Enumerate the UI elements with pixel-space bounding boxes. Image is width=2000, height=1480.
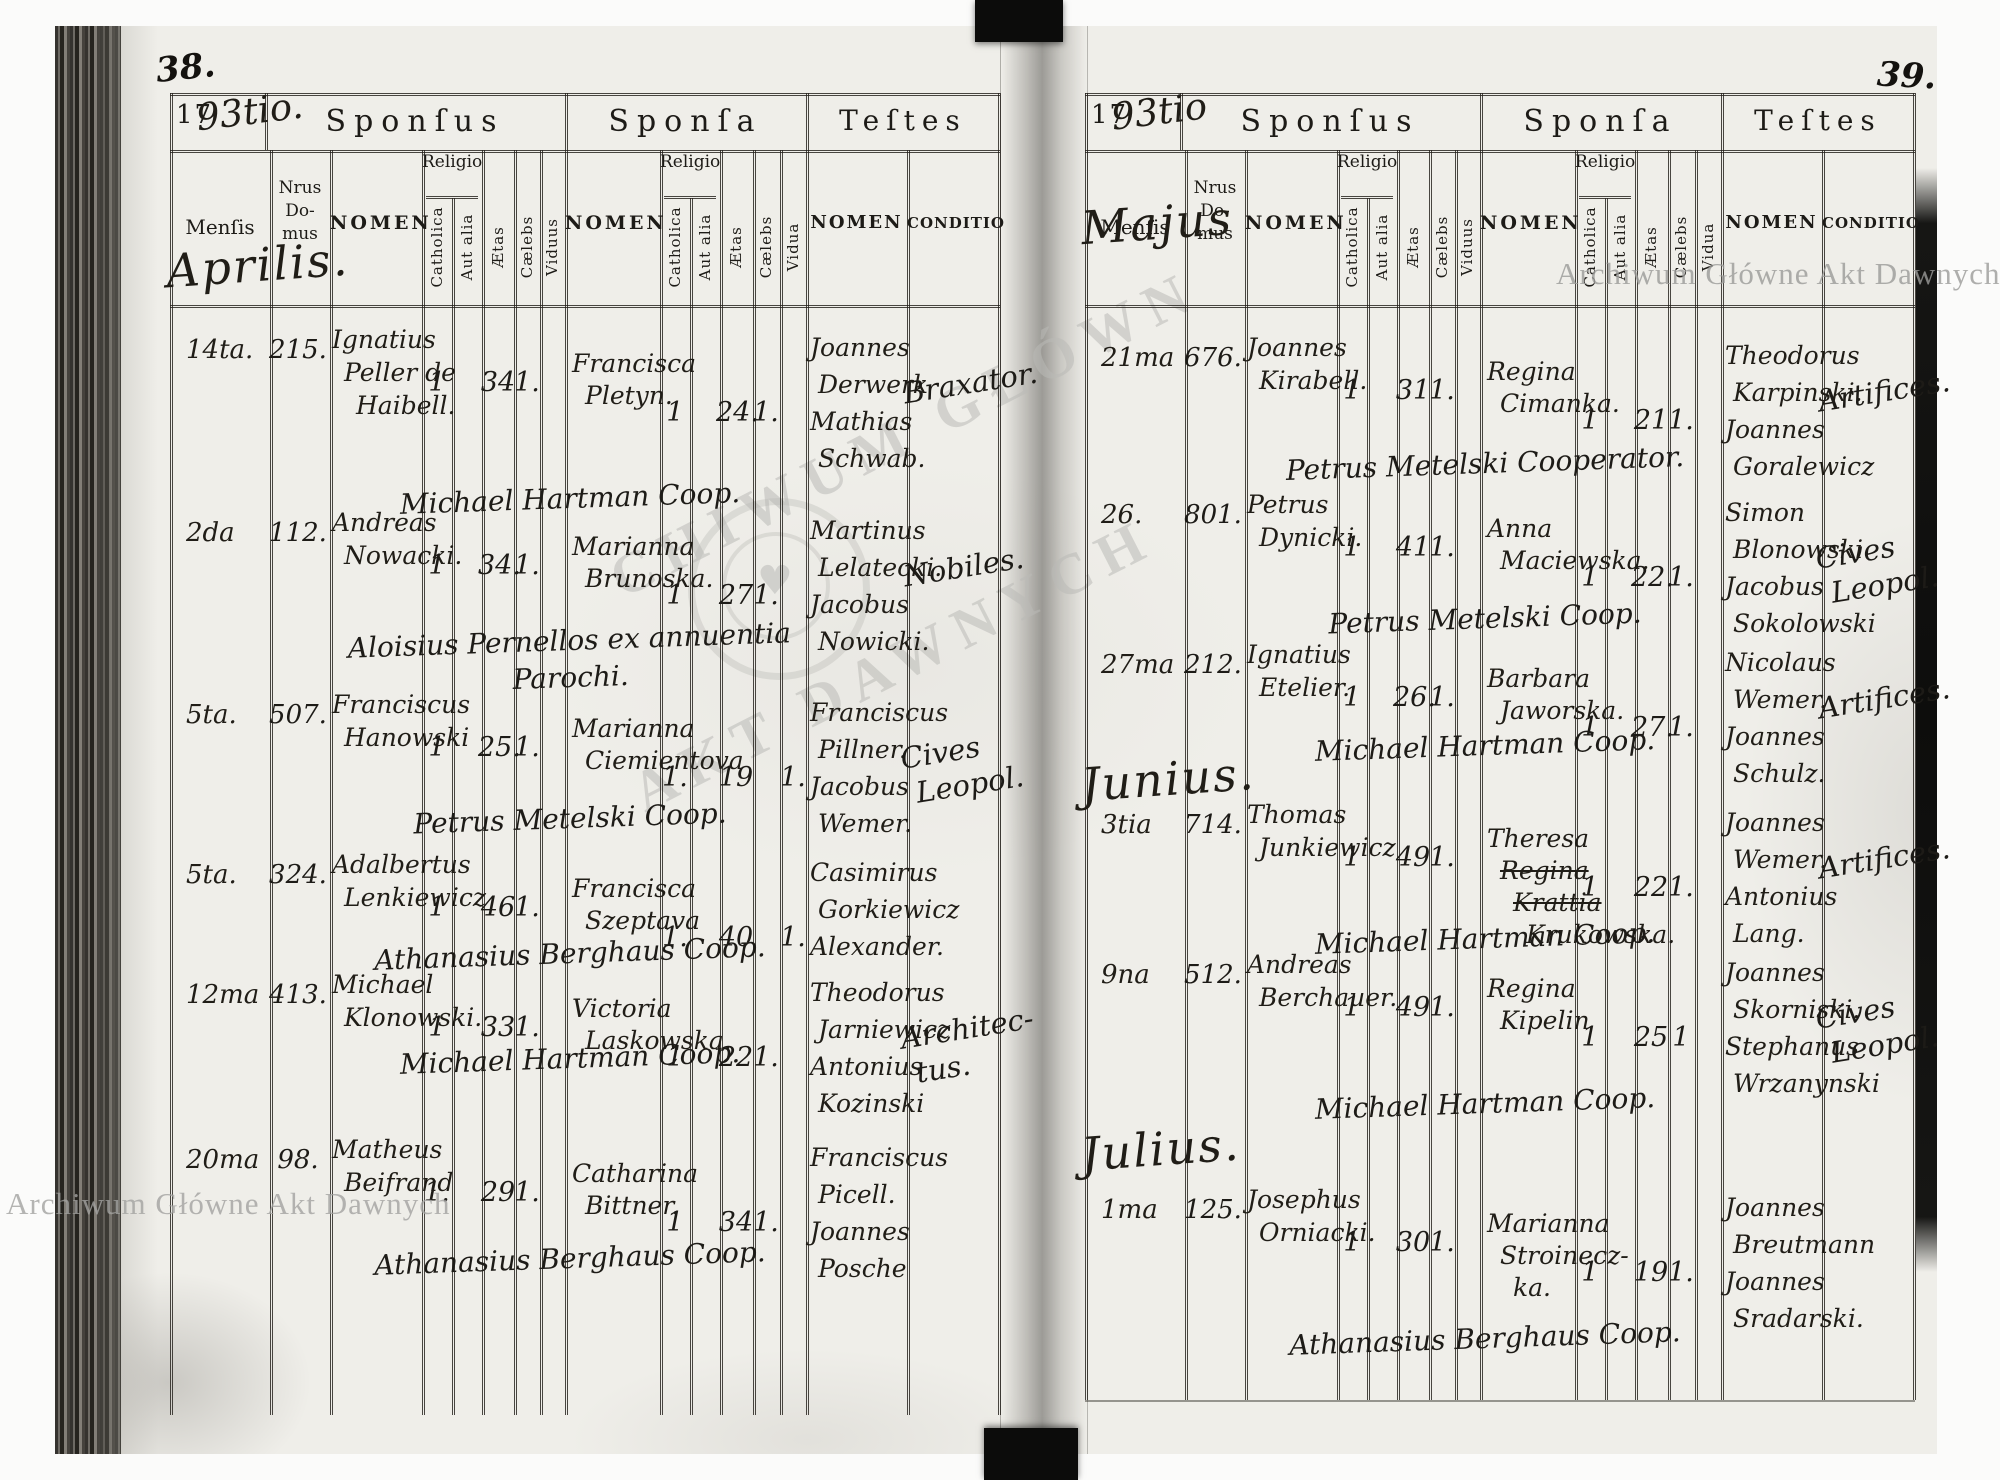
column-label-conditio: CONDITIO bbox=[907, 214, 1000, 232]
column-label-religio-sponsus: Religio bbox=[1337, 152, 1397, 172]
entry-house-number: 512. bbox=[1183, 960, 1243, 990]
sponsus-catholica: 1 bbox=[1332, 375, 1372, 406]
table-rule-vertical bbox=[1668, 150, 1671, 1400]
section-title-testes: Teſtes bbox=[806, 104, 1000, 137]
sponsa-name-line: Francisca bbox=[572, 874, 696, 903]
sponsus-catholica: 1. bbox=[417, 1177, 457, 1208]
column-label-aetas-sponsa: Ætas bbox=[727, 197, 745, 297]
entry-date: 26. bbox=[1101, 500, 1142, 530]
book-right-edge-shadow bbox=[1916, 168, 1937, 1272]
table-rule-horizontal bbox=[170, 150, 1000, 153]
witness-name-line: Joannes bbox=[1725, 958, 1825, 987]
sponsa-vidua: 1. bbox=[773, 762, 813, 793]
sponsa-catholica: 1 bbox=[655, 580, 695, 611]
column-label-caelebs-sponsa: Cælebs bbox=[757, 197, 775, 297]
month-heading: Junius. bbox=[1079, 746, 1257, 812]
section-title-sponsa: Sponſa bbox=[1480, 104, 1721, 139]
table-rule-vertical bbox=[482, 150, 485, 1415]
sponsa-name-line: Regina bbox=[1487, 357, 1576, 386]
sponsus-name-line: Ignatius bbox=[332, 325, 436, 354]
column-label-caelebs-sponsus: Cælebs bbox=[518, 197, 536, 297]
entry-house-number: 801. bbox=[1183, 500, 1243, 530]
column-label-catholica-sponsa: Catholica bbox=[1581, 197, 1599, 297]
sponsus-catholica: 1 bbox=[417, 892, 457, 923]
entry-date: 27ma bbox=[1101, 650, 1174, 680]
column-label-aut-alia-sponsus: Aut alia bbox=[1373, 197, 1391, 297]
sponsus-caelebs: 1. bbox=[507, 1012, 547, 1043]
entry-date: 5ta. bbox=[186, 860, 237, 890]
section-title-sponsa: Sponſa bbox=[565, 104, 806, 139]
sponsa-catholica: 1 bbox=[1570, 1022, 1610, 1053]
sponsa-catholica: 1 bbox=[1570, 1257, 1610, 1288]
column-label-conditio: CONDITIO bbox=[1822, 214, 1915, 232]
witness-name-line: Wrzanynski bbox=[1733, 1069, 1880, 1098]
section-title-testes: Teſtes bbox=[1721, 104, 1915, 137]
sponsa-catholica: 1 bbox=[1570, 405, 1610, 436]
sponsus-name-line: Josephus bbox=[1247, 1185, 1361, 1214]
sponsa-name-line: Marianna bbox=[572, 532, 694, 561]
entry-date: 9na bbox=[1101, 960, 1150, 990]
witness-name-line: Pillner. bbox=[818, 735, 907, 764]
witness-name-line: Mathias bbox=[810, 407, 912, 436]
sponsa-catholica: 1 bbox=[655, 397, 695, 428]
sponsus-name-line: Andreas bbox=[332, 508, 437, 537]
entry-date: 21ma bbox=[1101, 343, 1174, 373]
sponsus-caelebs: 1. bbox=[1422, 842, 1462, 873]
sponsus-name-line: Thomas bbox=[1247, 800, 1346, 829]
sponsus-name-line: Matheus bbox=[332, 1135, 442, 1164]
column-label-aut-alia-sponsus: Aut alia bbox=[458, 197, 476, 297]
table-rule-horizontal bbox=[170, 93, 1000, 96]
entry-date: 2da bbox=[186, 518, 235, 548]
witness-name-line: Wemer. bbox=[1733, 685, 1827, 714]
sponsus-caelebs: 1. bbox=[1422, 375, 1462, 406]
witness-name-line: Sokolowski bbox=[1733, 609, 1876, 638]
column-label-nomen-sponsus: NOMEN bbox=[330, 212, 422, 234]
sponsa-name-line: Marianna bbox=[572, 714, 694, 743]
sponsa-caelebs: 1. bbox=[746, 397, 786, 428]
sponsus-catholica: 1 bbox=[1332, 682, 1372, 713]
sponsus-catholica: 1 bbox=[1332, 532, 1372, 563]
sponsa-name-line: ka. bbox=[1513, 1273, 1551, 1302]
sponsa-name-line: Barbara bbox=[1487, 664, 1590, 693]
sponsa-caelebs: 1. bbox=[1661, 405, 1701, 436]
column-label-religio-sponsa: Religio bbox=[1575, 152, 1635, 172]
section-title-sponsus: Sponſus bbox=[1180, 104, 1480, 139]
column-label-aut-alia-sponsa: Aut alia bbox=[696, 197, 714, 297]
witness-name-line: Wemer. bbox=[818, 809, 912, 838]
witness-name-line: Posche bbox=[818, 1254, 907, 1283]
sponsus-name-line: Berchauer. bbox=[1259, 983, 1397, 1012]
page-right: 39. 17 93tio SponſusSponſaTeſtesMenſisNr… bbox=[1085, 0, 1915, 1480]
entry-date: 14ta. bbox=[186, 335, 253, 365]
table-rule-vertical bbox=[1480, 150, 1483, 1400]
sponsa-name-line: Regina bbox=[1487, 974, 1576, 1003]
sponsus-caelebs: 1. bbox=[507, 367, 547, 398]
sponsa-catholica: 1 bbox=[1570, 562, 1610, 593]
column-label-aut-alia-sponsa: Aut alia bbox=[1611, 197, 1629, 297]
sponsus-caelebs: 1. bbox=[507, 1177, 547, 1208]
table-rule-vertical bbox=[1455, 150, 1458, 1400]
sponsa-name-line: Francisca bbox=[572, 349, 696, 378]
table-rule-vertical bbox=[1695, 150, 1698, 1400]
entry-date: 12ma bbox=[186, 980, 259, 1010]
sponsus-name-line: Klonowski. bbox=[344, 1003, 482, 1032]
table-rule-horizontal bbox=[1085, 305, 1915, 308]
sponsus-name-line: Adalbertus bbox=[332, 850, 471, 879]
column-label-mensis: Menſis bbox=[170, 215, 270, 239]
month-heading: Aprilis. bbox=[164, 232, 350, 299]
table-rule-vertical bbox=[1085, 93, 1088, 1400]
sponsus-caelebs: 1. bbox=[507, 892, 547, 923]
column-label-religio-sponsus: Religio bbox=[422, 152, 482, 172]
entry-date: 1ma bbox=[1101, 1195, 1158, 1225]
witness-name-line: Joannes bbox=[1725, 808, 1825, 837]
sponsus-name-line: Ignatius bbox=[1247, 640, 1351, 669]
witness-name-line: Simon bbox=[1725, 498, 1805, 527]
book-gutter bbox=[1000, 26, 1088, 1454]
witness-name-line: Schulz. bbox=[1733, 759, 1825, 788]
table-rule-vertical bbox=[1635, 150, 1638, 1400]
column-label-nomen-testes: NOMEN bbox=[1721, 212, 1822, 233]
table-rule-horizontal bbox=[1085, 1400, 1915, 1402]
column-label-vidua: Vidua bbox=[1699, 197, 1717, 297]
entry-date: 20ma bbox=[186, 1145, 259, 1175]
column-label-caelebs-sponsus: Cælebs bbox=[1433, 197, 1451, 297]
witness-name-line: Joannes bbox=[810, 333, 910, 362]
column-label-nomen-testes: NOMEN bbox=[806, 212, 907, 233]
table-rule-vertical bbox=[1721, 150, 1724, 1400]
page-number: 38. bbox=[154, 45, 217, 91]
witness-name-line: Kozinski bbox=[818, 1089, 924, 1118]
witness-name-line: Theodorus bbox=[810, 978, 945, 1007]
column-label-catholica-sponsus: Catholica bbox=[1343, 197, 1361, 297]
table-rule-vertical bbox=[1429, 150, 1432, 1400]
column-label-nomen-sponsa: NOMEN bbox=[565, 212, 660, 234]
table-rule-vertical bbox=[1913, 93, 1916, 1400]
entry-house-number: 413. bbox=[268, 980, 328, 1010]
sponsus-catholica: 1 bbox=[1332, 992, 1372, 1023]
sponsus-name-line: Petrus bbox=[1247, 490, 1328, 519]
entry-date: 3tia bbox=[1101, 810, 1152, 840]
table-rule-horizontal bbox=[1085, 150, 1915, 153]
section-title-sponsus: Sponſus bbox=[265, 104, 565, 139]
month-heading: Majus bbox=[1079, 191, 1234, 255]
sponsa-name-line: Catharina bbox=[572, 1159, 698, 1188]
book-left-edge-shade bbox=[98, 26, 158, 1454]
sponsa-caelebs: 1. bbox=[1661, 1257, 1701, 1288]
month-heading: Julius. bbox=[1079, 1117, 1242, 1182]
sponsa-caelebs: 1. bbox=[1661, 562, 1701, 593]
sponsa-name-line: Victoria bbox=[572, 994, 672, 1023]
entry-house-number: 676. bbox=[1183, 343, 1243, 373]
sponsus-name-line: Andreas bbox=[1247, 950, 1352, 979]
sponsa-catholica: 1. bbox=[655, 762, 695, 793]
sponsus-catholica: 1 bbox=[417, 732, 457, 763]
entry-house-number: 507. bbox=[268, 700, 328, 730]
sponsa-caelebs: 1 bbox=[1661, 1022, 1701, 1053]
sponsus-name-line: Joannes bbox=[1247, 333, 1347, 362]
sponsus-caelebs: 1. bbox=[507, 732, 547, 763]
witness-name-line: Nicolaus bbox=[1725, 648, 1836, 677]
sponsus-catholica: 1 bbox=[1332, 1227, 1372, 1258]
sponsus-name-line: Lenkiewicz bbox=[344, 883, 486, 912]
column-label-caelebs-sponsa: Cælebs bbox=[1672, 197, 1690, 297]
sponsa-catholica: 1 bbox=[1570, 872, 1610, 903]
sponsa-caelebs: 1. bbox=[746, 580, 786, 611]
witness-name-line: Antonius bbox=[1725, 882, 1837, 911]
witness-name-line: Martinus bbox=[810, 516, 926, 545]
table-rule-vertical bbox=[1397, 150, 1400, 1400]
witness-name-line: Breutmann bbox=[1733, 1230, 1875, 1259]
sponsa-caelebs: 1. bbox=[1661, 872, 1701, 903]
witness-name-line: Franciscus bbox=[810, 1143, 948, 1172]
sponsus-caelebs: 1. bbox=[507, 550, 547, 581]
sponsus-caelebs: 1. bbox=[1422, 532, 1462, 563]
column-label-viduus: Viduus bbox=[1458, 197, 1476, 297]
witness-name-line: Franciscus bbox=[810, 698, 948, 727]
sponsa-name-line: Anna bbox=[1487, 514, 1552, 543]
witness-name-line: Casimirus bbox=[810, 858, 937, 887]
sponsus-caelebs: 1. bbox=[1422, 1227, 1462, 1258]
sponsus-catholica: 1 bbox=[417, 1012, 457, 1043]
entry-house-number: 212. bbox=[1183, 650, 1243, 680]
witness-name-line: Goralewicz bbox=[1733, 452, 1874, 481]
entry-house-number: 125. bbox=[1183, 1195, 1243, 1225]
witness-name-line: Schwab. bbox=[818, 444, 925, 473]
column-label-viduus: Viduus bbox=[543, 197, 561, 297]
page-number: 39. bbox=[1876, 54, 1937, 97]
sponsus-caelebs: 1. bbox=[1422, 992, 1462, 1023]
table-rule-vertical bbox=[540, 150, 543, 1415]
witness-name-line: Picell. bbox=[818, 1180, 896, 1209]
witness-name-line: Joannes bbox=[1725, 1193, 1825, 1222]
column-label-nrus-domus: Nrus bbox=[270, 178, 330, 198]
table-rule-vertical bbox=[565, 150, 568, 1415]
column-label-aetas-sponsus: Ætas bbox=[1404, 197, 1422, 297]
entry-house-number: 112. bbox=[268, 518, 328, 548]
column-label-nomen-sponsus: NOMEN bbox=[1245, 212, 1337, 234]
column-label-nrus-domus: Do- bbox=[270, 201, 330, 221]
column-label-religio-sponsa: Religio bbox=[660, 152, 720, 172]
sponsus-caelebs: 1. bbox=[1422, 682, 1462, 713]
witness-name-line: Sradarski. bbox=[1733, 1304, 1864, 1333]
column-label-nomen-sponsa: NOMEN bbox=[1480, 212, 1575, 234]
sponsa-aetas: 19 bbox=[716, 762, 756, 793]
sponsus-name-line: Michael bbox=[332, 970, 433, 999]
sponsus-name-line: Junkiewicz bbox=[1259, 833, 1396, 862]
column-label-vidua: Vidua bbox=[784, 197, 802, 297]
register-scan: CHIWUM GŁÓWN AKT DAWNYCH ♥ 38. 17 93tio.… bbox=[0, 0, 2000, 1480]
table-rule-vertical bbox=[514, 150, 517, 1415]
sponsa-name-line: Marianna bbox=[1487, 1209, 1609, 1238]
sponsa-catholica: 1 bbox=[655, 1207, 695, 1238]
sponsus-catholica: 1 bbox=[417, 367, 457, 398]
witness-name-line: Joannes bbox=[1725, 1267, 1825, 1296]
entry-house-number: 215. bbox=[268, 335, 328, 365]
column-label-aetas-sponsus: Ætas bbox=[489, 197, 507, 297]
witness-name-line: Wemer. bbox=[1733, 845, 1827, 874]
table-rule-horizontal bbox=[170, 305, 1000, 308]
column-label-aetas-sponsa: Ætas bbox=[1642, 197, 1660, 297]
page-left: 38. 17 93tio. SponſusSponſaTeſtesMenſisN… bbox=[170, 0, 1000, 1480]
witness-name-line: Gorkiewicz bbox=[818, 895, 959, 924]
entry-house-number: 714. bbox=[1183, 810, 1243, 840]
sponsus-name-line: Franciscus bbox=[332, 690, 470, 719]
witness-name-line: Theodorus bbox=[1725, 341, 1860, 370]
column-label-catholica-sponsus: Catholica bbox=[428, 197, 446, 297]
entry-house-number: 98. bbox=[268, 1145, 328, 1175]
table-rule-horizontal bbox=[1085, 93, 1915, 96]
column-label-catholica-sponsa: Catholica bbox=[666, 197, 684, 297]
sponsa-name-line: Theresa bbox=[1487, 824, 1589, 853]
sponsus-catholica: 1 bbox=[1332, 842, 1372, 873]
entry-date: 5ta. bbox=[186, 700, 237, 730]
entry-house-number: 324. bbox=[268, 860, 328, 890]
witness-name-line: Nowicki. bbox=[818, 627, 929, 656]
sponsus-catholica: 1 bbox=[417, 550, 457, 581]
